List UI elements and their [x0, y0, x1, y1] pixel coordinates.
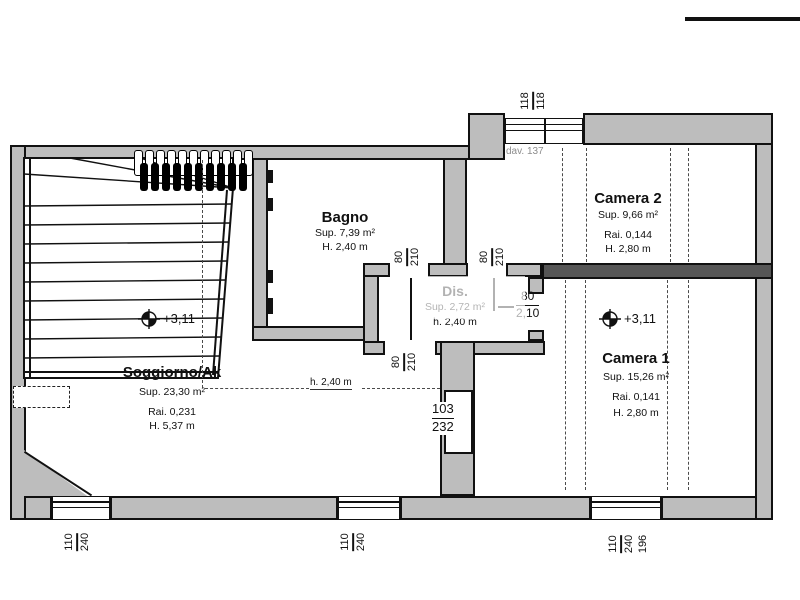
elevation-value: +3,11 [624, 311, 656, 326]
dim-door-camera2: 80 210 [478, 248, 506, 266]
elevation-marker-icon [598, 307, 622, 331]
dim-fraction-bar [491, 248, 493, 266]
room-bagno-sup: Sup. 7,39 m² [295, 227, 395, 239]
wardrobe-dashed-line [562, 148, 563, 262]
baluster [140, 163, 148, 191]
window-mullion [544, 119, 546, 143]
dim-value: 240 [79, 533, 91, 551]
dim-wall-niche: 103 232 [430, 402, 456, 435]
wardrobe-dashed-line [585, 280, 586, 490]
wardrobe-dashed-line [688, 280, 689, 490]
window-glass-line [339, 507, 399, 509]
dim-value: 232 [432, 420, 454, 435]
room-bagno-h: H. 2,40 m [295, 241, 395, 253]
dim-value: 210 [409, 248, 421, 266]
wall-bagno-bottom [252, 326, 379, 341]
baluster [239, 163, 247, 191]
window-glass-line [53, 507, 109, 509]
dim-fraction-bar [403, 353, 405, 371]
dim-window-left: 110 240 [63, 533, 91, 551]
room-camera2-sup: Sup. 9,66 m² [578, 209, 678, 221]
wall-pilaster [266, 198, 273, 211]
dim-value: 210 [406, 353, 418, 371]
dim-fraction-bar [406, 248, 408, 266]
dim-value: 118 [535, 92, 547, 110]
elevation-marker-icon [137, 307, 161, 331]
wardrobe-dashed-line [667, 280, 668, 490]
dim-value: 110 [63, 533, 75, 551]
baluster [184, 163, 192, 191]
room-bagno-name: Bagno [300, 209, 390, 226]
ceiling-height-label: h. 2,40 m [310, 377, 352, 390]
railing-balusters-row2 [140, 163, 250, 191]
room-camera1-name: Camera 1 [580, 350, 692, 367]
dim-value: 118 [519, 92, 531, 110]
room-camera1-sup: Sup. 15,26 m² [586, 371, 686, 383]
dim-value: 110 [607, 535, 619, 553]
wall-camera-divider [542, 263, 773, 279]
window-right [591, 496, 661, 520]
wall-right [755, 143, 773, 520]
room-soggiorno-sup: Sup. 23,30 m² [112, 386, 232, 398]
window-glass-line [592, 501, 660, 503]
window-left [52, 496, 110, 520]
baluster [173, 163, 181, 191]
ceiling-height-dashed-line [202, 160, 203, 388]
dim-window-mid: 110 240 [339, 533, 367, 551]
wall-bottom-a [24, 496, 52, 520]
titleblock-line [685, 17, 800, 21]
wall-pilaster [266, 298, 273, 314]
baluster [228, 163, 236, 191]
stair-projection-dashed [13, 386, 70, 408]
dim-value: 210 [494, 248, 506, 266]
dim-top-window: 118 118 [519, 92, 547, 110]
floor-plan: Soggiorno/Ak Sup. 23,30 m² Rai. 0,231 H.… [0, 0, 800, 600]
sill-note: dav. 137 [506, 146, 570, 157]
room-soggiorno-name: Soggiorno/Ak [92, 364, 252, 381]
dim-fraction-bar [76, 533, 78, 551]
wall-dis-top-1 [363, 263, 390, 277]
room-camera1-h: H. 2,80 m [591, 407, 681, 419]
wall-bagno-right [443, 158, 467, 268]
wall-pilaster [266, 270, 273, 283]
wall-pilaster [266, 170, 273, 183]
dim-window-right: 110 240 196 [607, 535, 649, 553]
room-camera2-name: Camera 2 [572, 190, 684, 207]
wall-top-right [583, 113, 773, 145]
baluster [206, 163, 214, 191]
window-mid [338, 496, 400, 520]
baluster [217, 163, 225, 191]
watermark-overlay [417, 276, 525, 319]
ceiling-height-dashed-line [362, 388, 440, 389]
room-camera2-rai: Rai. 0,144 [583, 229, 673, 241]
dim-value: 196 [637, 535, 649, 553]
dim-fraction-bar [352, 533, 354, 551]
dim-value: 80 [393, 251, 405, 263]
elevation-value: +3,11 [163, 311, 195, 326]
window-glass-line [53, 501, 109, 503]
wall-window-stub [468, 113, 505, 160]
wardrobe-dashed-line [565, 280, 566, 490]
dim-value: 240 [355, 533, 367, 551]
room-soggiorno-rai: Rai. 0,231 [122, 406, 222, 418]
dim-value: 240 [623, 535, 635, 553]
dim-door-bagno: 80 210 [393, 248, 421, 266]
dim-value: 80 [390, 356, 402, 368]
dim-door-soggiorno: 80 210 [390, 353, 418, 371]
baluster [162, 163, 170, 191]
wall-dis-top-3 [506, 263, 542, 277]
window-glass-line [592, 507, 660, 509]
dim-value: 103 [432, 402, 454, 417]
dim-fraction-bar [532, 92, 534, 110]
wardrobe-dashed-line [688, 148, 689, 262]
wall-bottom-c [400, 496, 591, 520]
dim-value: 110 [339, 533, 351, 551]
wall-dis-top-2 [428, 263, 468, 277]
window-glass-line [339, 501, 399, 503]
wall-dis-right-2 [528, 330, 544, 341]
wall-bottom-b [110, 496, 338, 520]
room-camera1-rai: Rai. 0,141 [591, 391, 681, 403]
room-camera2-h: H. 2,80 m [583, 243, 673, 255]
dim-fraction-bar [620, 535, 622, 553]
room-soggiorno-h: H. 5,37 m [122, 420, 222, 432]
window-top [505, 118, 583, 144]
baluster [151, 163, 159, 191]
dim-value: 80 [478, 251, 490, 263]
wall-dis-bottom-1 [363, 341, 385, 355]
